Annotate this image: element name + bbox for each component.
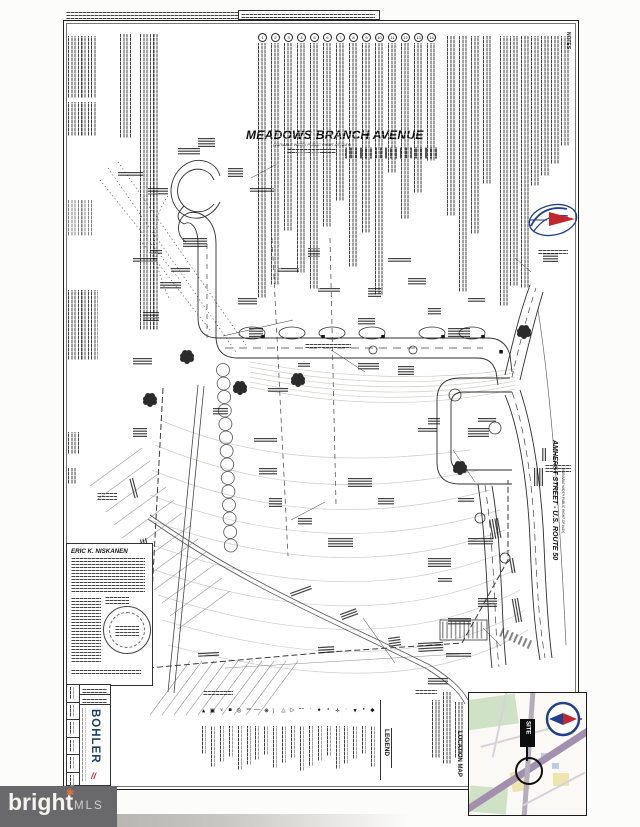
- legend-separator: [380, 700, 381, 780]
- notes-header: NOTES: [565, 32, 571, 54]
- firm-logo-slashes: //: [91, 771, 96, 781]
- legend-item-label: [327, 726, 331, 756]
- legend-item-label: [344, 726, 348, 764]
- leader-lines: [223, 164, 531, 663]
- copyright-box-text: [241, 13, 375, 18]
- legend-item-label: [336, 726, 340, 769]
- pole-icon: │: [253, 708, 258, 711]
- watermark-box: bright ✱ MLS: [0, 786, 117, 827]
- copyright-box: [238, 10, 380, 20]
- legend-item-label: [362, 726, 366, 754]
- bottom-note-col-2: [443, 692, 451, 764]
- seal-box: ERIC K. NISKANEN: [66, 543, 153, 686]
- north-arrow-icon: [527, 196, 579, 247]
- watermark-spark-icon: ✱: [66, 788, 74, 799]
- legend-item-label: [229, 726, 233, 757]
- arrow-right-marker-icon: ►: [351, 708, 356, 713]
- bullet-icon: •: [325, 708, 330, 710]
- legend-item-label: [202, 726, 206, 754]
- manhole-icon: ◎: [236, 708, 241, 713]
- dotted-lines: [100, 162, 246, 352]
- legend-item-label: [309, 726, 313, 766]
- bottom-note-col-1: [432, 700, 440, 758]
- street-plate-note: [305, 344, 351, 348]
- filled-circle-icon: ●: [316, 708, 321, 711]
- tick-icon: ·: [342, 708, 347, 710]
- legend-item-label: [273, 726, 277, 768]
- location-map: SITE: [468, 692, 587, 816]
- legend-item-label: [238, 726, 242, 770]
- legend-item-label: [353, 726, 357, 759]
- firm-logo-block: BOHLER //: [79, 704, 111, 786]
- dot-small-icon: ∙: [307, 708, 312, 710]
- zoning-data-table: [68, 102, 96, 136]
- notes-minor-column-a: [120, 34, 133, 138]
- street-label-meadows-branch: MEADOWS BRANCH AVENUE: [246, 128, 424, 142]
- map-site-label: SITE: [525, 721, 531, 734]
- legend-top-note: [203, 690, 233, 695]
- map-green-area-1: [468, 694, 519, 731]
- double-line-icon: ‖: [245, 708, 250, 710]
- map-compass-icon: [543, 699, 583, 744]
- edge-note-a: [68, 432, 80, 454]
- location-map-title: LOCATION MAP: [456, 731, 462, 813]
- delta-marker-icon: △: [289, 708, 294, 712]
- legend-item-label: [291, 726, 295, 758]
- stream-line: [148, 515, 468, 704]
- square-small-icon: ▪: [360, 708, 365, 710]
- engineer-name: ERIC K. NISKANEN: [71, 548, 128, 555]
- watermark-word: bright: [8, 789, 73, 816]
- cross-marker-icon: ✛: [334, 708, 339, 713]
- legend-item-label: [255, 726, 259, 760]
- north-arrow-caption: [538, 248, 568, 254]
- watermark-suffix: MLS: [74, 800, 104, 812]
- legend-item-label: [220, 726, 224, 762]
- legend: LEGEND ◄▣»■◎‖│❋︵◁△¦∙●•✛·►▪◆: [200, 698, 396, 784]
- certification-text: [71, 558, 145, 592]
- bottom-note-a: [415, 688, 437, 694]
- copyright-strip-line1: [66, 11, 238, 16]
- legend-title: LEGEND: [383, 729, 390, 771]
- signature-line: [71, 668, 141, 674]
- arc-line-icon: ︵: [271, 708, 276, 714]
- legend-item-label: [211, 726, 215, 767]
- legend-item-label: [318, 726, 322, 761]
- annotation-text-marks: [118, 138, 558, 684]
- legend-item-label: [282, 726, 286, 763]
- broken-line-icon: ¦: [298, 708, 303, 709]
- legend-title-rule: [391, 728, 392, 768]
- map-site-flag: SITE: [520, 719, 535, 747]
- professional-seal-icon: [103, 606, 151, 654]
- map-site-circle: [515, 757, 543, 785]
- notes-minor-column-b: [140, 34, 158, 330]
- acreage-note: [97, 493, 117, 500]
- license-note: [105, 596, 129, 604]
- road-network: [171, 160, 552, 668]
- legend-item-label: [247, 726, 251, 765]
- right-edge-note: [545, 464, 571, 472]
- legend-item-label: [371, 726, 375, 767]
- tree-icon: ❋: [262, 708, 267, 713]
- double-arrow-icon: »: [218, 708, 223, 711]
- dotted-leader-table: [68, 200, 94, 236]
- diamond-marker-icon: ◆: [369, 708, 374, 712]
- square-marker-icon: ■: [227, 708, 232, 711]
- legend-item-label: [264, 726, 268, 755]
- street-label-amherst: AMHERST STREET - U.S. ROUTE 50: [551, 440, 558, 592]
- map-blue-area-2: [552, 763, 559, 769]
- inlet-grate-icon: ▣: [209, 708, 214, 713]
- firm-name: BOHLER: [89, 709, 101, 771]
- site-data-table: [68, 36, 96, 98]
- arrow-left-marker-icon: ◄: [200, 708, 205, 713]
- certification-text-2: [71, 596, 101, 662]
- edge-note-b: [68, 468, 78, 484]
- street-label-meadows-subnote: [287, 149, 337, 153]
- street-label-meadows-row-note: (VARIABLE WIDTH PUBLIC RIGHT-OF-WAY): [266, 143, 358, 147]
- sheet-canvas: MEADOWS BRANCH AVENUE (VARIABLE WIDTH PU…: [0, 0, 640, 827]
- parking-data-table: [68, 290, 98, 360]
- legend-item-label: [300, 726, 304, 771]
- firm-address-lines: [82, 708, 86, 782]
- street-label-amherst-row-note: (VARIABLE WIDTH PUBLIC RIGHT-OF-WAY): [561, 468, 565, 544]
- landscape-ovals: [239, 327, 510, 563]
- open-arrow-icon: ◁: [280, 708, 285, 712]
